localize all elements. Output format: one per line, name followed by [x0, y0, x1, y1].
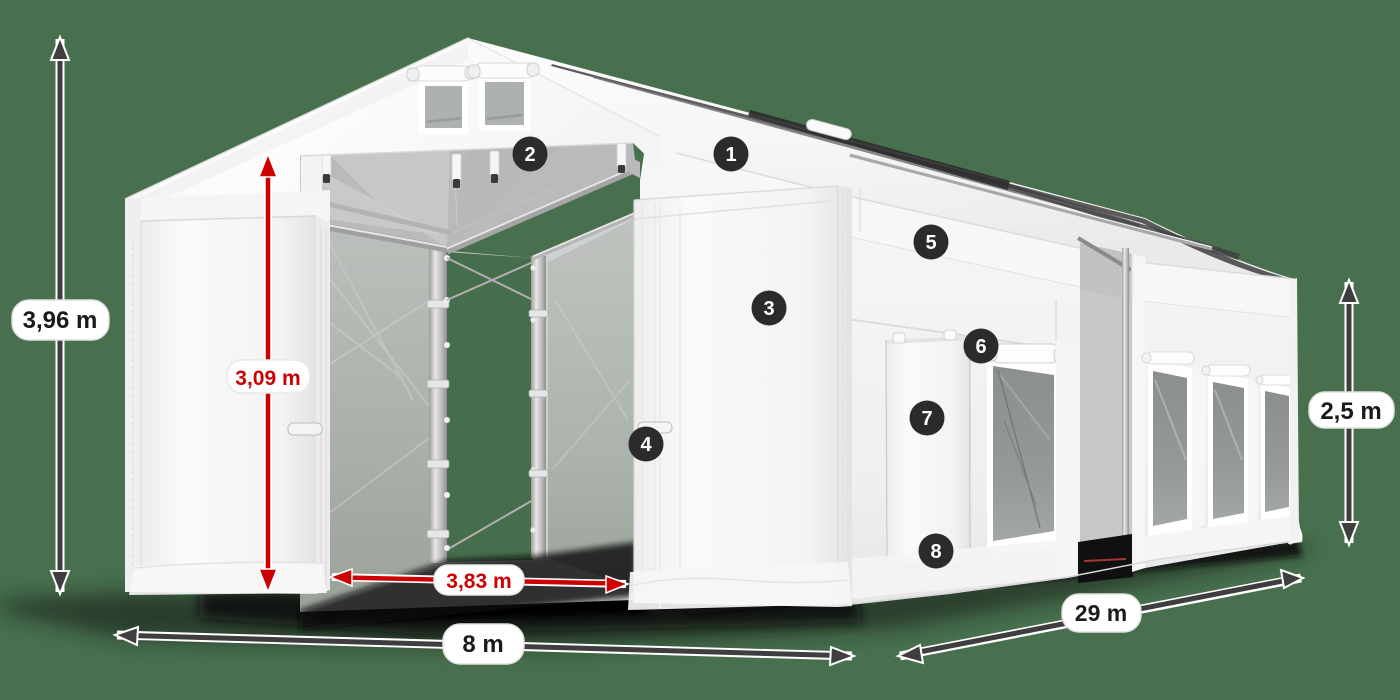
svg-text:5: 5: [925, 232, 936, 254]
svg-text:3,96 m: 3,96 m: [23, 307, 98, 334]
svg-text:29 m: 29 m: [1075, 600, 1127, 626]
svg-text:4: 4: [640, 434, 652, 456]
svg-text:3: 3: [763, 298, 774, 320]
svg-text:6: 6: [975, 336, 986, 358]
svg-text:3,09 m: 3,09 m: [235, 367, 300, 390]
svg-text:8 m: 8 m: [462, 631, 503, 658]
svg-text:8: 8: [930, 541, 941, 563]
svg-text:7: 7: [921, 408, 932, 430]
svg-text:3,83 m: 3,83 m: [446, 570, 511, 593]
svg-text:2,5 m: 2,5 m: [1320, 398, 1381, 425]
svg-text:2: 2: [524, 144, 535, 166]
svg-text:1: 1: [725, 144, 736, 166]
